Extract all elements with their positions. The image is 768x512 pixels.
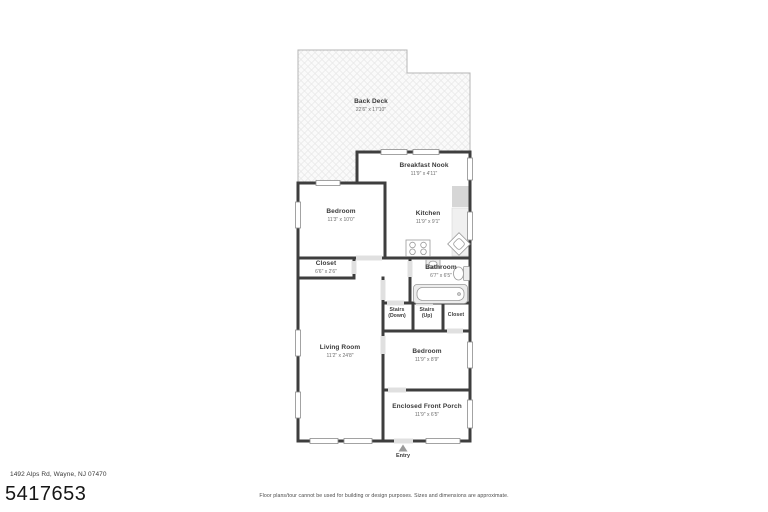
window: [468, 158, 473, 180]
door-opening: [387, 301, 404, 306]
window: [296, 392, 301, 418]
back-deck-area: [298, 50, 470, 183]
window: [413, 150, 439, 155]
door-opening: [381, 280, 386, 300]
window: [468, 400, 473, 428]
entry-arrow-icon: [399, 445, 408, 452]
listing-address: 1492 Alps Rd, Wayne, NJ 07470: [10, 471, 107, 478]
window: [468, 342, 473, 368]
bathtub-icon: [414, 285, 468, 304]
door-opening: [352, 261, 357, 274]
door-opening: [381, 336, 386, 354]
window: [344, 439, 372, 444]
door-openings: [352, 256, 464, 444]
window: [426, 439, 460, 444]
door-opening: [356, 256, 382, 261]
window: [296, 330, 301, 356]
window: [316, 181, 340, 186]
window: [310, 439, 338, 444]
window: [468, 212, 473, 240]
door-opening: [394, 439, 413, 444]
fridge-icon: [452, 186, 470, 207]
window: [296, 202, 301, 228]
window: [381, 150, 407, 155]
bathroom-sink-icon: [426, 260, 440, 269]
disclaimer-text: Floor plans/tour cannot be used for buil…: [0, 493, 768, 499]
floor-plan-page: Back Deck 22'6" x 17'10" Breakfast Nook …: [0, 0, 768, 512]
door-opening: [408, 261, 413, 277]
floor-plan-canvas: [0, 0, 768, 512]
door-opening: [388, 388, 406, 393]
entry-label: Entry: [396, 453, 410, 459]
stove-icon: [406, 240, 430, 257]
toilet-icon: [454, 267, 470, 281]
door-opening: [447, 329, 463, 334]
